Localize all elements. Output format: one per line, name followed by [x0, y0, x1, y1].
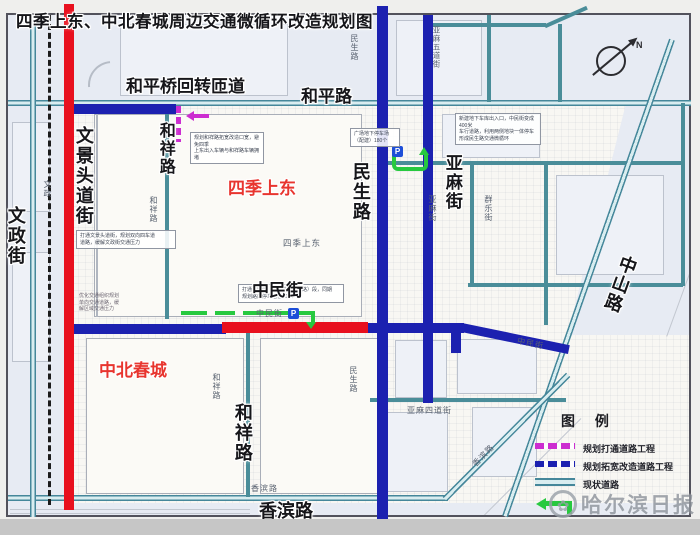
label-zhongminjie: 中民街: [252, 282, 303, 300]
road-wenzhengjie: [30, 15, 36, 517]
green-dash-1: [181, 311, 207, 315]
parking-icon: P: [288, 308, 299, 319]
road-ne-vertical-1: [487, 15, 491, 102]
road-ne-vertical-2: [558, 24, 562, 102]
label-minshenglu: 民生路: [351, 162, 370, 222]
minor-label: 群乐街: [483, 195, 494, 222]
magenta-arrow-head: [186, 111, 194, 121]
block-se-1: [395, 340, 447, 398]
magenta-arrow-shaft: [193, 114, 209, 118]
watermark: ✿ 哈尔滨日报: [549, 489, 696, 519]
red-wenjing-toudaojie: [64, 4, 74, 510]
planned-zhongminjie-east: [366, 323, 464, 333]
label-wenjingtoudaojie: 文景头道街: [74, 126, 93, 226]
label-hexianglu-north: 和祥路: [156, 122, 173, 176]
road-mid-east: [468, 283, 683, 287]
minor-label: 文政: [42, 180, 53, 198]
road-qunlejie: [470, 165, 474, 285]
green-route-arrow: [306, 322, 316, 329]
minor-label: 民生路: [349, 34, 360, 61]
rail-line-1: [10, 509, 250, 510]
block-west-edge-road: [96, 111, 98, 317]
label-wenzhengjie: 文政街: [6, 206, 25, 266]
planned-ramp-segment: [68, 104, 176, 114]
label-hexianglu-south: 和祥路: [233, 403, 252, 463]
page-bottom-margin: [0, 519, 700, 535]
annotation-note: 优化交通组织规划 单向交通道路，缓 解区域交通压力: [76, 291, 132, 315]
legend-swatch-planned-widening: [535, 461, 575, 467]
minor-label: 亚麻四道街: [407, 405, 452, 416]
block-south-center: [260, 338, 378, 494]
minor-label: 和祥路: [148, 196, 159, 223]
label-zhongbei-chuncheng: 中北春城: [99, 362, 167, 380]
parking-icon: P: [392, 146, 403, 157]
legend-label-planned-widening: 规划拓宽改造道路工程: [583, 460, 673, 473]
harbin-daily-logo-icon: ✿: [549, 490, 577, 518]
road-mid-vertical: [544, 165, 548, 325]
minor-label: 四季上东: [283, 237, 321, 249]
planned-minshenglu: [377, 6, 388, 522]
block-se-3: [378, 412, 448, 492]
annotation-note: 规划和祥路拓宽改造口宽，避免四季 上东出入车辆与和祥路车辆拥堵: [190, 132, 264, 164]
planning-map-image: P P N 新建地下车库出入口，中民街变成400米 车行道路，利用两侧地块一体停…: [0, 0, 700, 535]
minor-label: 中民街: [256, 308, 283, 319]
minor-label: 亚麻街: [427, 195, 438, 222]
minor-label: 亚麻五道街: [431, 26, 442, 69]
label-hepinglu: 和平路: [301, 88, 352, 106]
annotation-note: 广场地下停车场 （配建）180个: [350, 128, 400, 147]
legend-label-planned-opening: 规划打通道路工程: [583, 442, 655, 455]
label-hepingqiao-ramp: 和平桥回转匝道: [126, 78, 245, 96]
label-yamajie: 亚麻街: [443, 154, 461, 211]
planned-zhongminjie-jog: [451, 331, 461, 353]
annotation-note: 新建地下车库出入口，中民街变成400米 车行道路，利用两侧地块一体停车 形成民生…: [455, 113, 541, 145]
red-zhongminjie: [222, 322, 368, 333]
minor-label: 香滨路: [251, 483, 278, 494]
minor-label: 民生路: [348, 366, 359, 393]
planned-zhongminjie-west: [74, 324, 226, 334]
legend-green-arrow-head: [536, 498, 546, 510]
green-loop-arrow: [419, 147, 429, 155]
planned-opening-hexianglu: [176, 106, 181, 142]
annotation-note: 打通文景头道街，规划双向四车道 道路，缓解文政街交通压力: [76, 230, 176, 249]
legend-title: 图 例: [561, 411, 617, 431]
page-title: 四季上东、中北春城周边交通微循环改造规划图: [16, 14, 373, 31]
dashed-boundary-line: [48, 15, 51, 505]
label-siji-shangdong: 四季上东: [228, 180, 296, 198]
rail-line-2: [10, 513, 250, 514]
green-dash-2: [215, 311, 235, 315]
compass-north-label: N: [636, 40, 643, 50]
legend-swatch-planned-opening: [535, 443, 575, 449]
legend-swatch-existing-road: [535, 478, 575, 486]
road-east-vertical: [681, 103, 685, 286]
watermark-text: 哈尔滨日报: [581, 489, 696, 519]
minor-label: 和祥路: [211, 373, 222, 400]
